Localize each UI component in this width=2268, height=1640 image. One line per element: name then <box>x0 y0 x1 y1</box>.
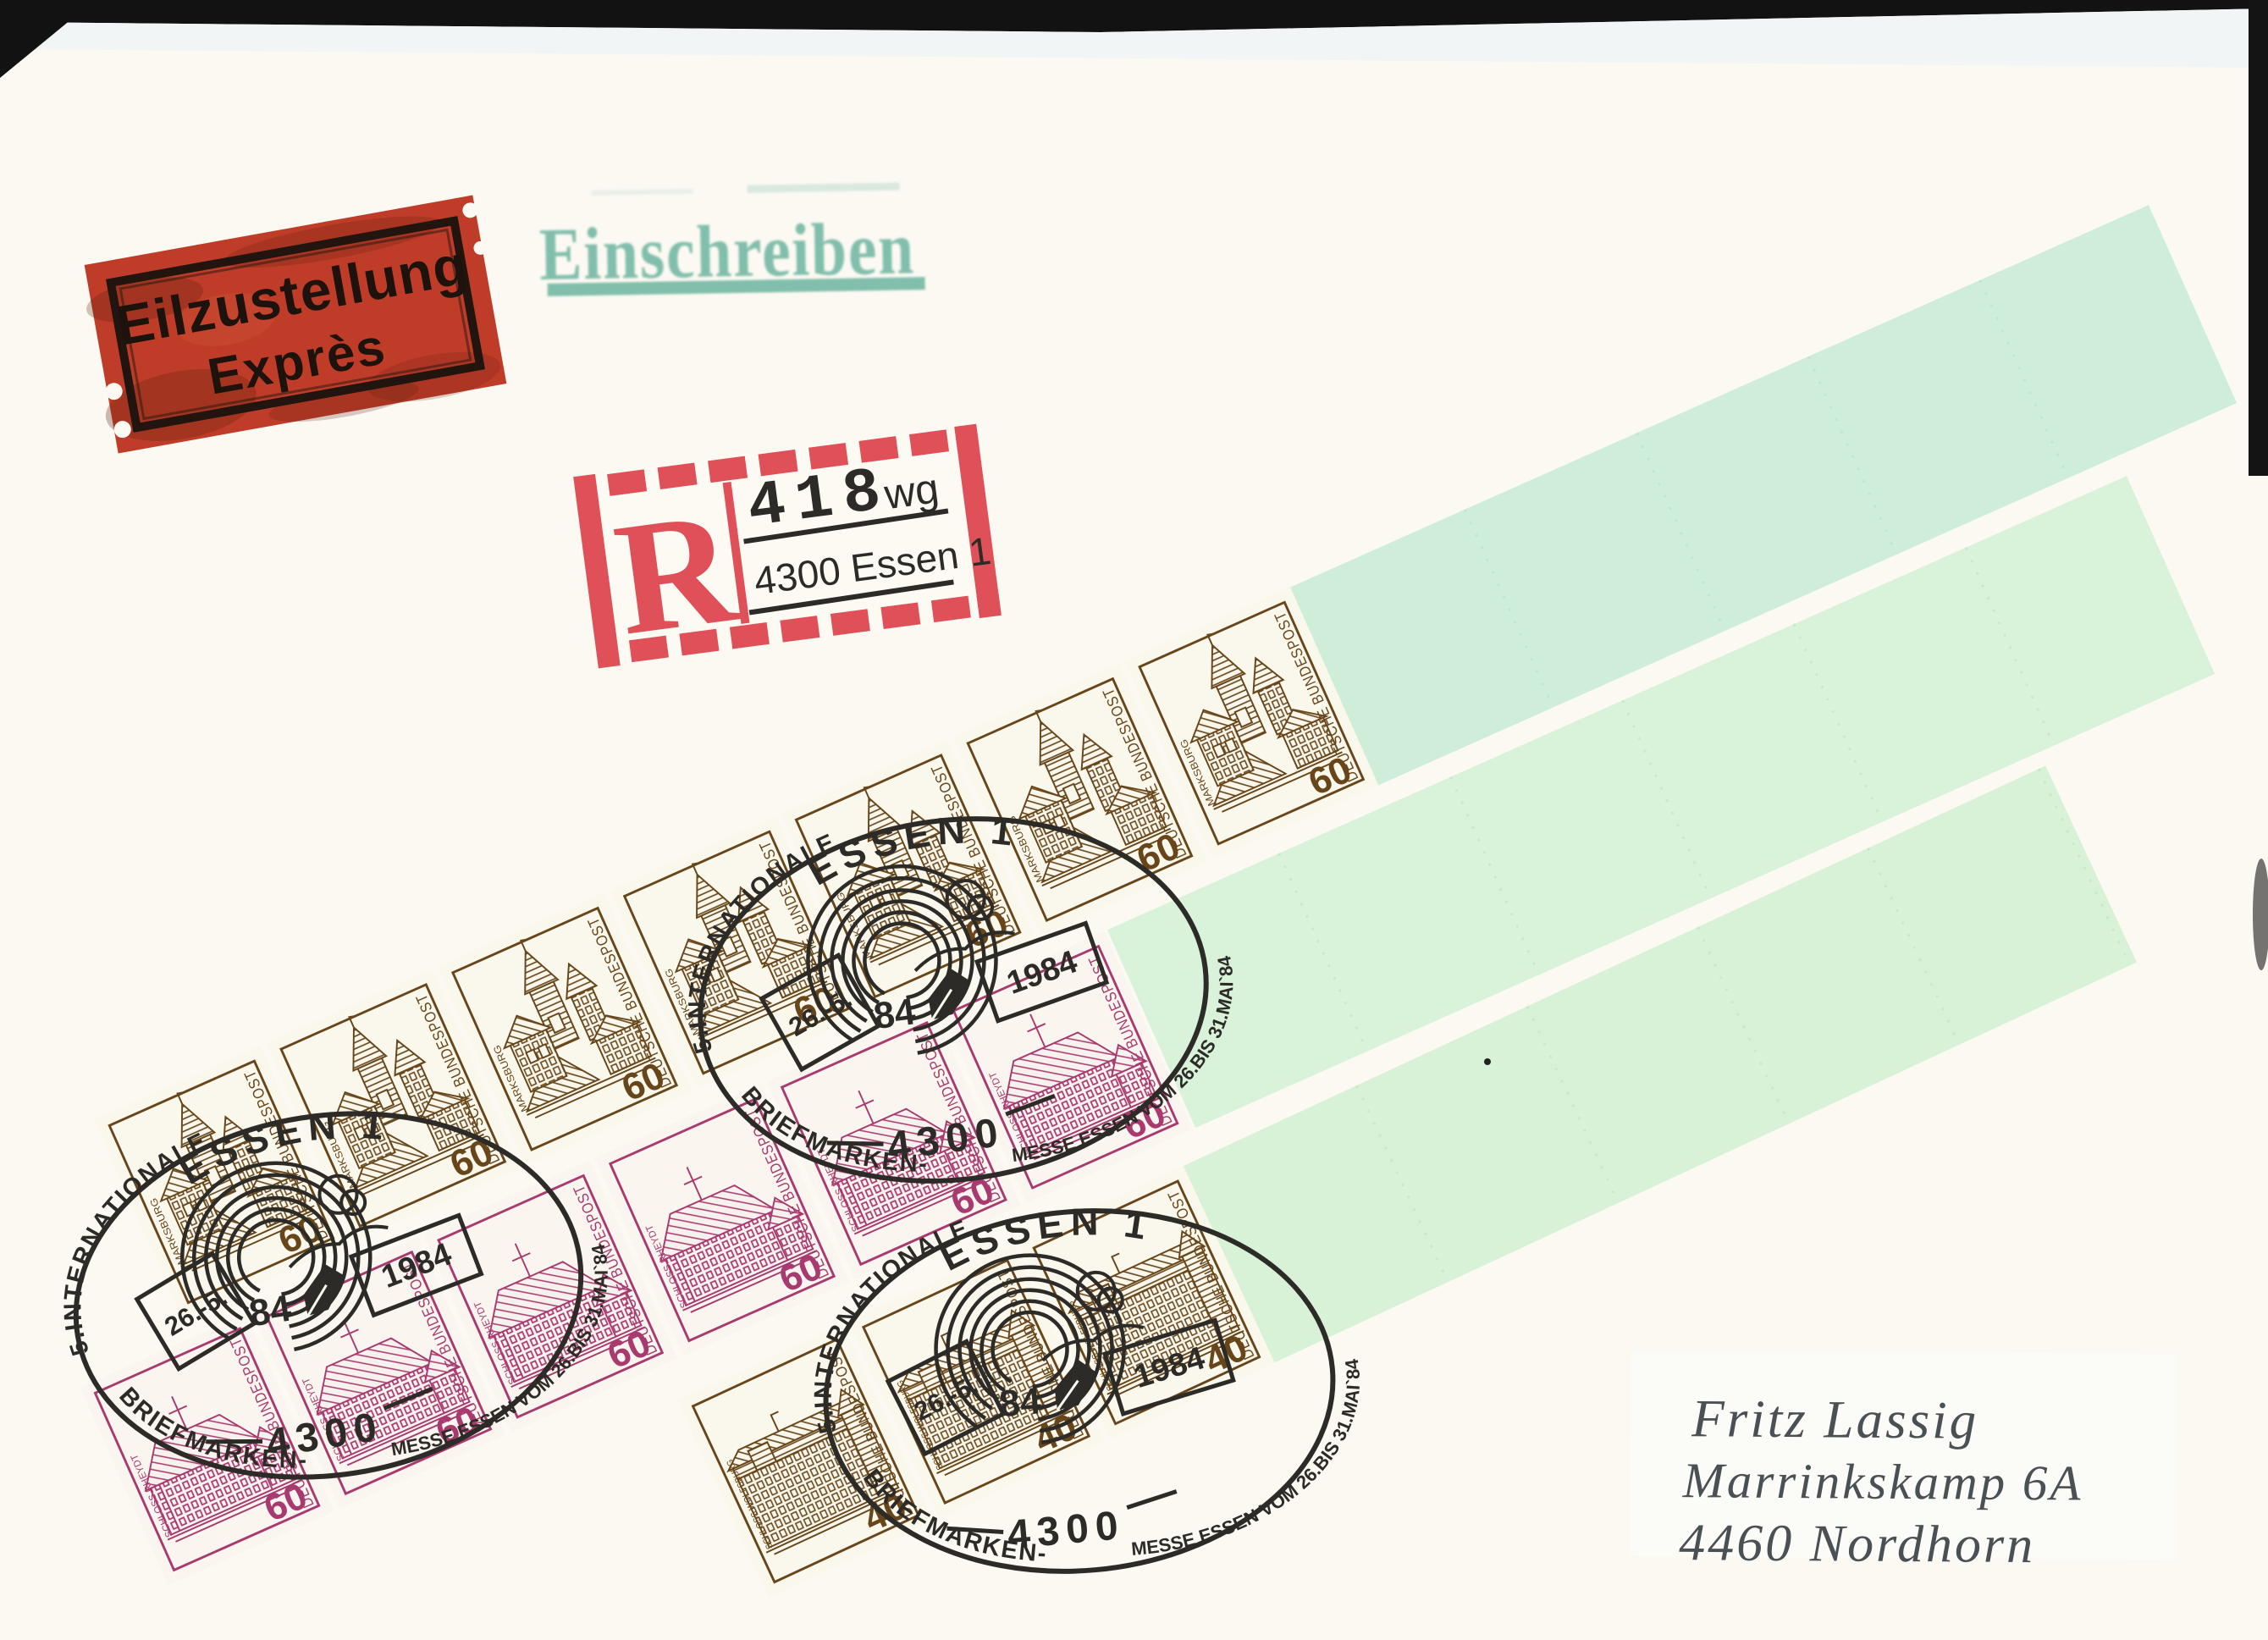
svg-text:4460 Nordhorn: 4460 Nordhorn <box>1679 1514 2035 1574</box>
svg-text:wg: wg <box>880 464 941 518</box>
svg-text:R: R <box>606 478 746 669</box>
svg-text:Marrinkskamp 6A: Marrinkskamp 6A <box>1682 1452 2083 1510</box>
svg-text:Fritz Lassig: Fritz Lassig <box>1691 1389 1978 1449</box>
